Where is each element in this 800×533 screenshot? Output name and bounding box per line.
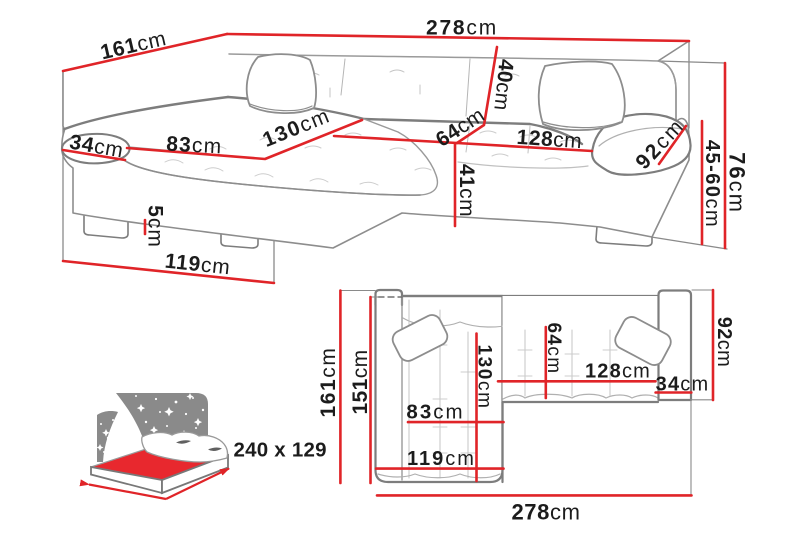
svg-text:130cm: 130cm	[474, 344, 495, 409]
svg-text:119cm: 119cm	[164, 250, 232, 280]
svg-text:278cm: 278cm	[511, 500, 580, 525]
svg-text:45-60cm: 45-60cm	[701, 140, 723, 228]
svg-text:151cm: 151cm	[349, 349, 372, 414]
svg-text:161cm: 161cm	[317, 346, 340, 417]
svg-text:34cm: 34cm	[656, 374, 710, 396]
svg-text:278cm: 278cm	[426, 17, 498, 40]
svg-text:64cm: 64cm	[543, 322, 564, 374]
svg-text:240 x 129: 240 x 129	[234, 439, 327, 462]
svg-text:92cm: 92cm	[713, 317, 735, 368]
svg-text:83cm: 83cm	[166, 133, 223, 159]
svg-text:119cm: 119cm	[407, 448, 476, 470]
svg-text:41cm: 41cm	[455, 164, 478, 217]
svg-text:5cm: 5cm	[144, 205, 167, 248]
svg-text:83cm: 83cm	[406, 401, 464, 424]
svg-text:128cm: 128cm	[585, 361, 651, 383]
svg-text:76cm: 76cm	[725, 152, 750, 214]
svg-text:128cm: 128cm	[516, 126, 583, 154]
